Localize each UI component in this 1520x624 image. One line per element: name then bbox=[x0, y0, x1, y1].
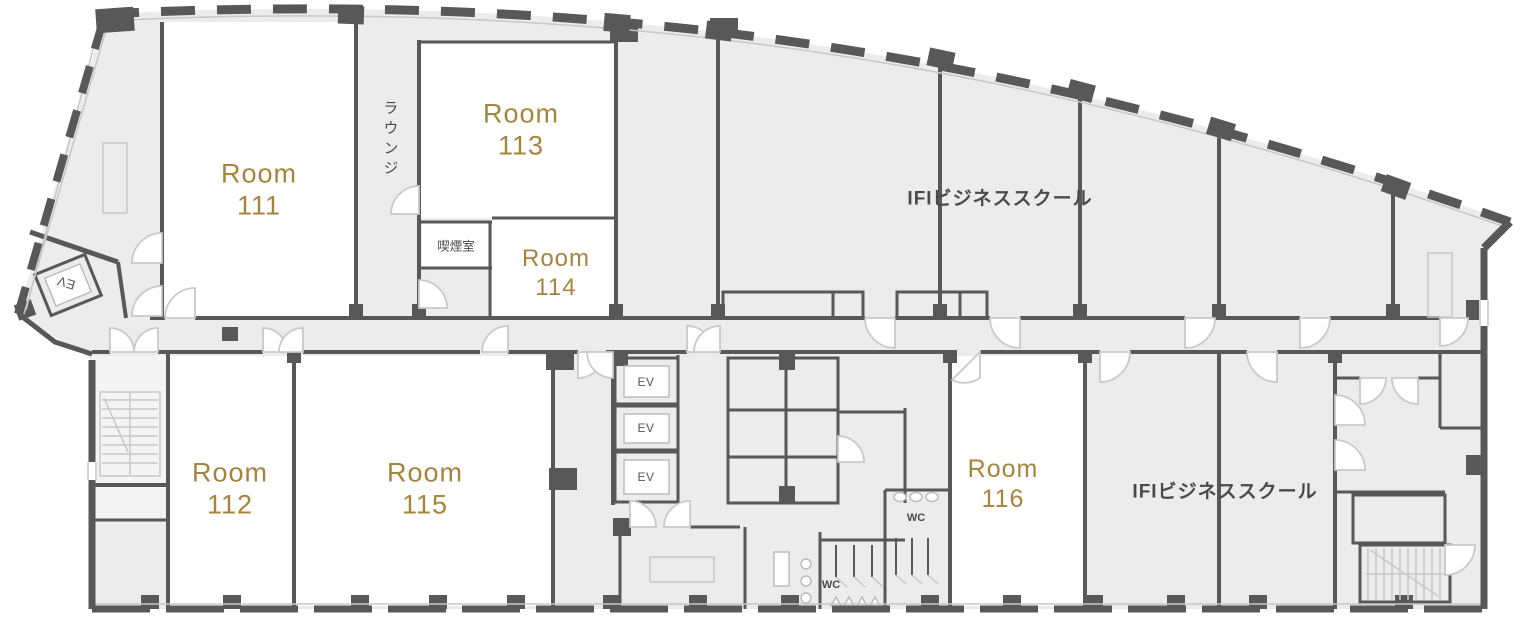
room-114-number: 114 bbox=[522, 274, 590, 303]
utility-room-area bbox=[92, 485, 168, 520]
room-113-number: 113 bbox=[483, 130, 559, 162]
room-112-name: Room bbox=[192, 457, 268, 489]
elevator-1-label: EV bbox=[637, 375, 654, 389]
room-114-label: Room 114 bbox=[522, 245, 590, 303]
wc-south-label: WC bbox=[822, 579, 840, 591]
room-112-number: 112 bbox=[192, 489, 268, 521]
floorplan-drawing bbox=[0, 0, 1520, 624]
room-111-name: Room bbox=[221, 158, 297, 190]
room-115-name: Room bbox=[387, 457, 463, 489]
room-111-label: Room 111 bbox=[221, 158, 297, 223]
room-116-name: Room bbox=[968, 454, 1039, 484]
room-116-number: 116 bbox=[968, 484, 1039, 514]
wc-north-label: WC bbox=[907, 512, 925, 524]
business-school-upper-label: IFIビジネススクール bbox=[907, 184, 1092, 211]
room-116-label: Room 116 bbox=[968, 454, 1039, 514]
elevator-3-label: EV bbox=[637, 470, 654, 484]
smoking-room-label: 喫煙室 bbox=[437, 236, 475, 255]
room-113-name: Room bbox=[483, 98, 559, 130]
room-115-label: Room 115 bbox=[387, 457, 463, 522]
room-114-name: Room bbox=[522, 245, 590, 274]
elevator-2-label: EV bbox=[637, 421, 654, 435]
business-school-lower-label: IFIビジネススクール bbox=[1132, 477, 1317, 504]
floor-plan: Room 111 Room 113 Room 114 Room 112 Room… bbox=[0, 0, 1520, 624]
lounge-label: ラウンジ bbox=[380, 100, 401, 180]
room-112-label: Room 112 bbox=[192, 457, 268, 522]
room-115-number: 115 bbox=[387, 489, 463, 521]
room-113-label: Room 113 bbox=[483, 98, 559, 163]
room-111-number: 111 bbox=[221, 190, 297, 222]
